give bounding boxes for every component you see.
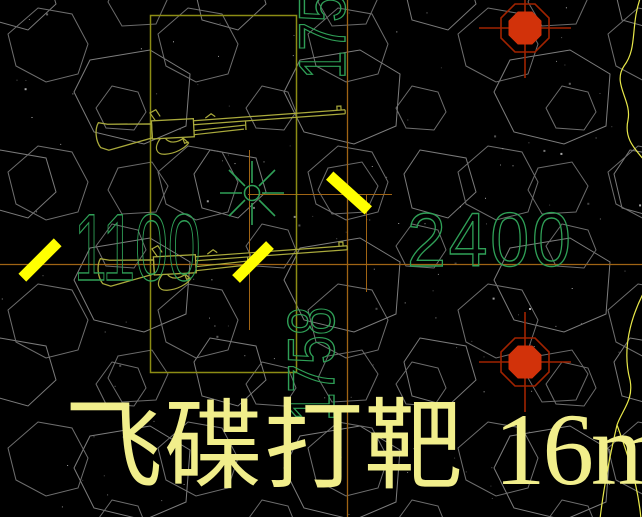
clay-target-marker[interactable] [479,0,571,78]
clay-flight-dash[interactable] [326,172,372,215]
area-title-size: 16m² [494,396,642,504]
area-title: 飞碟打靶 16m² [64,396,642,504]
sun-symbol-icon[interactable] [220,161,284,225]
dim-label-horizontal-right: 2400 [407,203,574,279]
area-title-chinese: 飞碟打靶 [64,396,464,500]
dim-label-horizontal-left: 1100 [74,201,201,296]
cad-viewport[interactable]: 1100 2400 1758 1758 飞碟打靶 16m² [0,0,642,517]
rifle-icon[interactable] [95,100,347,158]
dim-label-vertical-top: 1758 [289,0,355,79]
clay-flight-dash[interactable] [18,238,61,281]
